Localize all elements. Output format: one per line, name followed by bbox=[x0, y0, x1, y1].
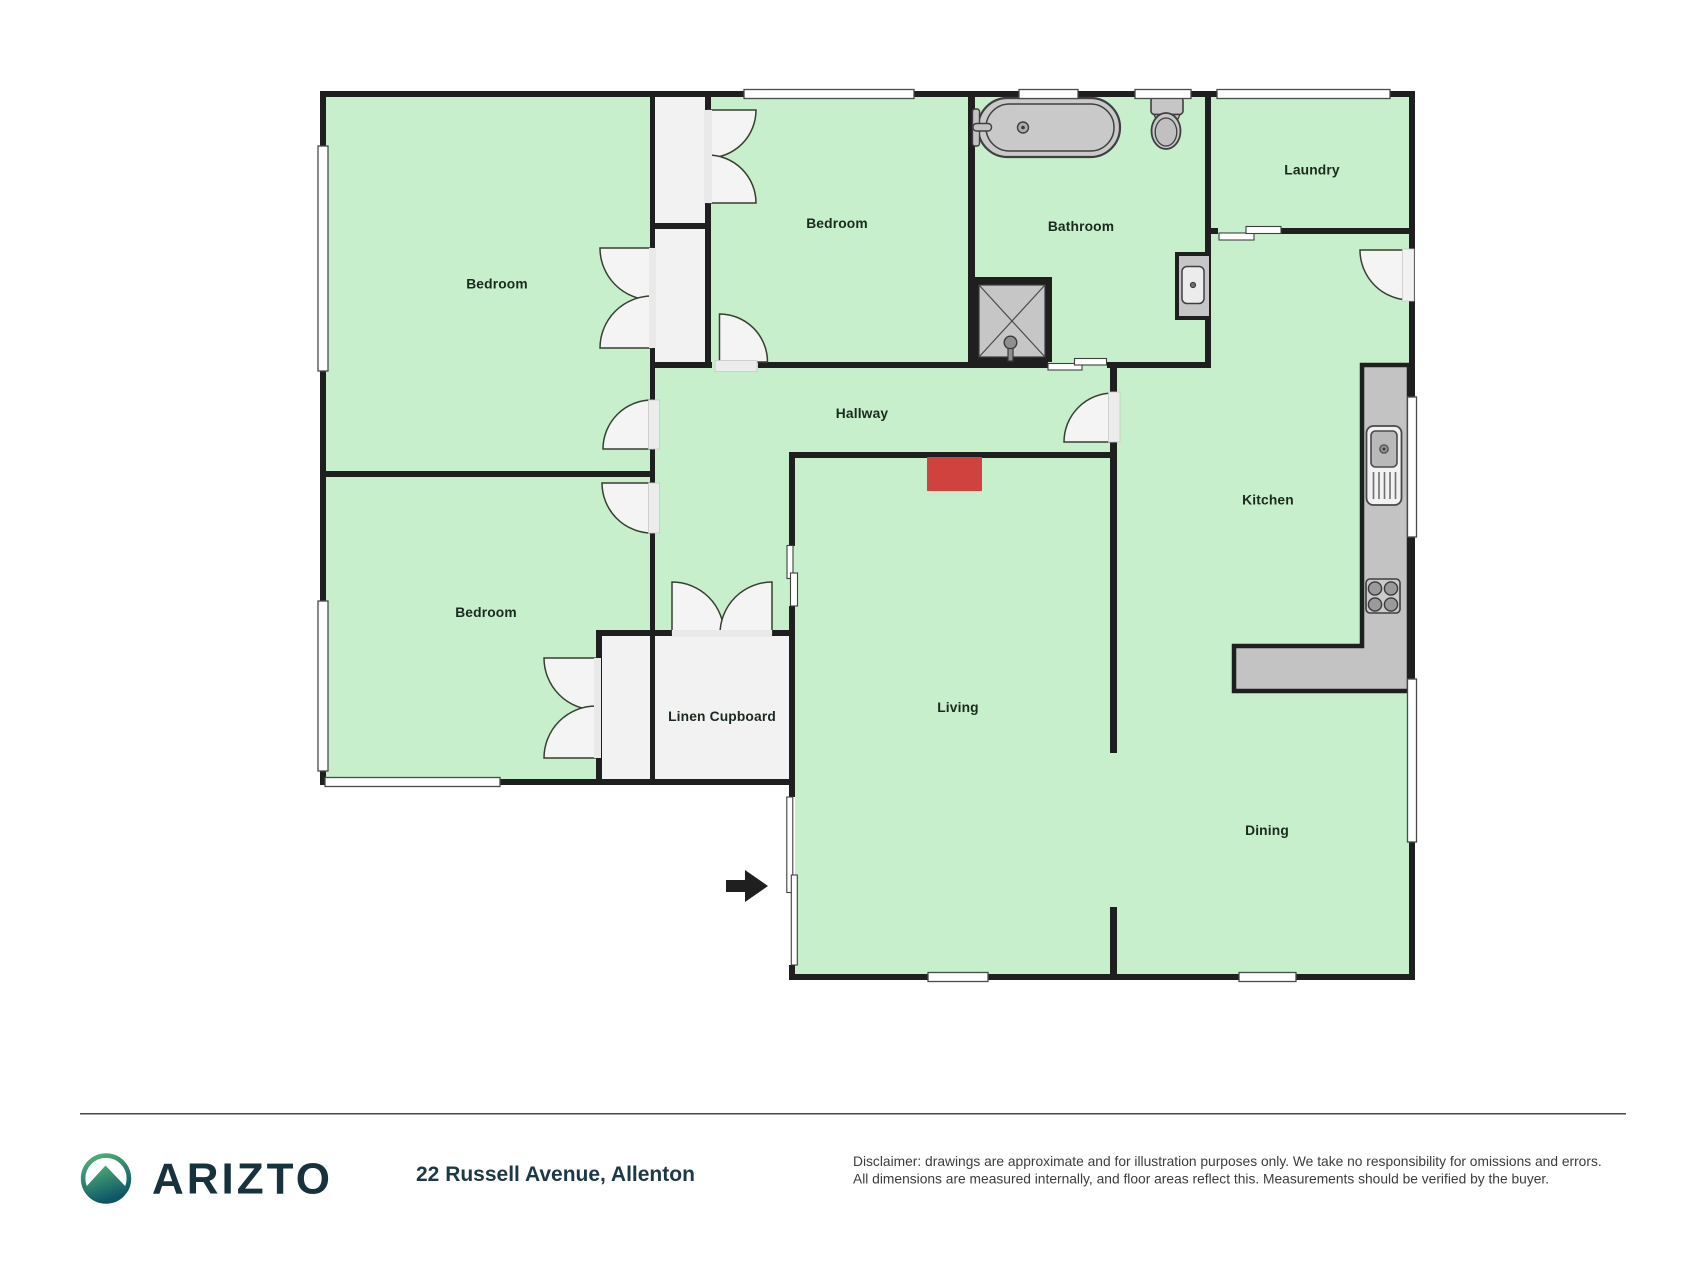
svg-text:Linen Cupboard: Linen Cupboard bbox=[668, 709, 776, 724]
svg-text:Bathroom: Bathroom bbox=[1048, 219, 1114, 234]
svg-text:Dining: Dining bbox=[1245, 823, 1289, 838]
svg-text:Bedroom: Bedroom bbox=[455, 605, 517, 620]
svg-text:22 Russell Avenue, Allenton: 22 Russell Avenue, Allenton bbox=[416, 1163, 695, 1186]
svg-text:Bedroom: Bedroom bbox=[806, 216, 868, 231]
svg-text:Laundry: Laundry bbox=[1284, 163, 1340, 178]
svg-text:Disclaimer: drawings are appro: Disclaimer: drawings are approximate and… bbox=[853, 1154, 1602, 1169]
svg-text:Bedroom: Bedroom bbox=[466, 277, 528, 292]
svg-text:All dimensions are measured in: All dimensions are measured internally, … bbox=[853, 1172, 1549, 1187]
svg-text:Living: Living bbox=[937, 700, 979, 715]
svg-text:Kitchen: Kitchen bbox=[1242, 493, 1294, 508]
svg-text:ARIZTO: ARIZTO bbox=[152, 1155, 333, 1204]
svg-text:Hallway: Hallway bbox=[836, 406, 889, 421]
